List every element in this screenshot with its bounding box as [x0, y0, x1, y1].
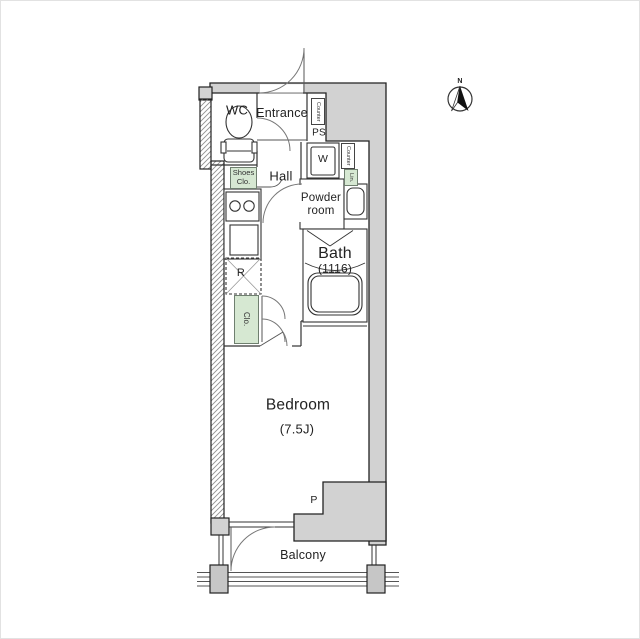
left-wall-upper-hatched [200, 99, 211, 169]
balcony-railing [197, 565, 399, 593]
floor-plan-image: Shoes Clo. Clo. Lin. Counter Counter WC … [0, 0, 640, 639]
compass-north-label: N [457, 78, 462, 86]
counter-side-label: Counter [342, 144, 354, 168]
room-label-wc: WC [226, 104, 248, 119]
shoes-closet-label: Shoes Clo. [231, 168, 256, 188]
left-wall-lower-hatched [211, 161, 224, 523]
bedroom-door [260, 332, 287, 346]
room-label-entrance: Entrance [256, 106, 308, 120]
top-left-wall-stub [199, 87, 212, 100]
closet-doors [262, 296, 285, 342]
room-label-balcony: Balcony [280, 548, 326, 562]
bottom-left-wall-cap [211, 518, 229, 535]
room-label-hall: Hall [269, 170, 292, 185]
counter-top-label: Counter [312, 99, 324, 124]
shoes-closet-box: Shoes Clo. [230, 167, 257, 189]
closet-label: Clo. [235, 296, 258, 343]
bottom-right-pillar [294, 482, 386, 541]
fixture-label-washer: W [318, 154, 328, 166]
room-label-bedroom: Bedroom [266, 396, 330, 413]
annotation-pillar: P [310, 495, 317, 507]
linen-label: Lin. [345, 170, 357, 185]
room-label-bath: Bath [318, 245, 352, 263]
closet-box: Clo. [234, 295, 259, 344]
balcony-door [231, 527, 275, 571]
room-label-powder-room: Powder room [300, 192, 342, 218]
fixture-label-refrigerator: R [237, 267, 245, 279]
wc-door-arc [257, 118, 290, 151]
kitchenette [224, 189, 261, 259]
room-label-bath-size: (1116) [318, 262, 352, 275]
counter-top-box: Counter [311, 98, 325, 125]
linen-box: Lin. [344, 169, 358, 186]
powder-door-arc [263, 184, 302, 223]
vanity-sink [344, 184, 367, 219]
balcony-post-left [210, 565, 228, 593]
counter-side-box: Counter [341, 143, 355, 169]
north-compass-icon [448, 86, 472, 111]
room-label-bedroom-size: (7.5J) [280, 423, 314, 438]
floor-plan-drawing [1, 1, 640, 639]
fixture-label-ps: PS [312, 127, 326, 138]
balcony-post-right [367, 565, 385, 593]
